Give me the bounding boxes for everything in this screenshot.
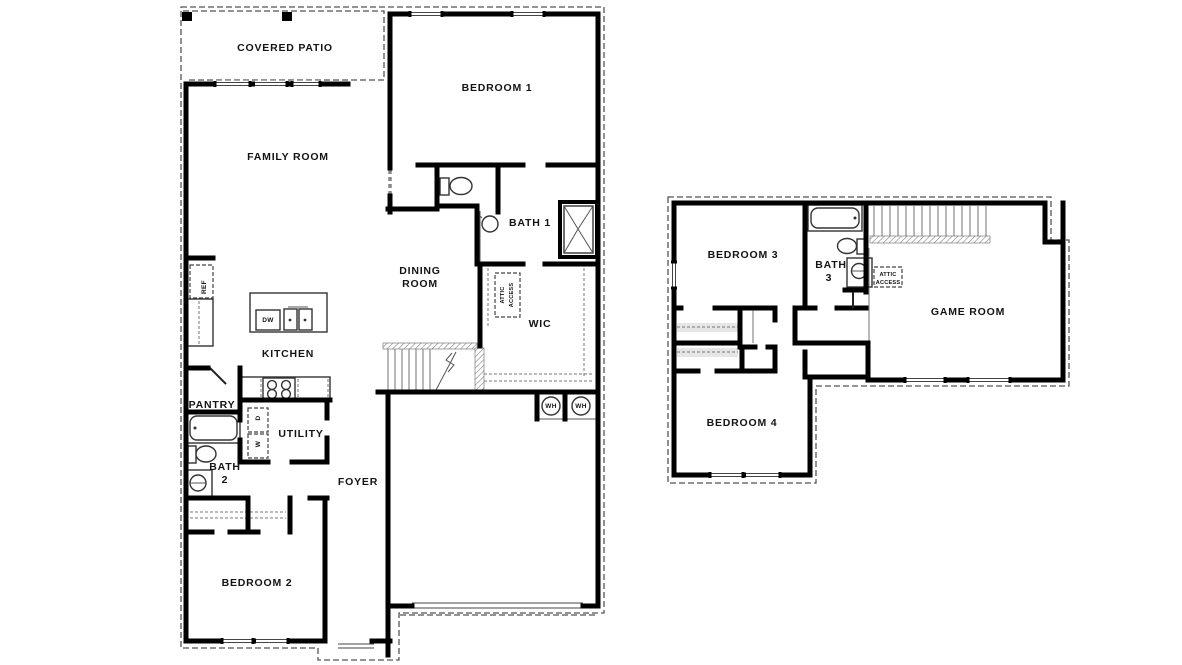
first-floor-walls: [186, 14, 598, 655]
room-label-dining-room: DINING: [399, 265, 441, 277]
bath1-shower-icon: [560, 202, 597, 257]
staircase-first-floor: [388, 349, 456, 390]
room-label-utility: UTILITY: [278, 428, 323, 440]
room-label-bath-3: BATH: [815, 259, 847, 271]
label-attic-access-ff-1: ATTIC: [500, 286, 506, 303]
label-water-heater-2: WH: [575, 403, 586, 410]
stair-hatch-wall: [475, 348, 484, 391]
room-label-pantry: PANTRY: [189, 399, 236, 411]
bath2-sink-icon: [187, 470, 212, 497]
bath1-toilet-icon: [440, 178, 472, 196]
label-attic-access-sf-1: ATTIC: [879, 272, 896, 278]
room-label-covered-patio: COVERED PATIO: [237, 42, 333, 54]
room-label-wic: WIC: [529, 318, 552, 330]
window: [214, 81, 252, 88]
bath3-tub-icon: [808, 205, 862, 231]
window: [409, 11, 444, 18]
patio-post: [282, 12, 292, 21]
label-dishwasher: DW: [262, 317, 274, 324]
bath2-tub-icon: [187, 413, 240, 443]
label-water-heater-1: WH: [545, 403, 556, 410]
stair-hatch-strip: [383, 343, 477, 349]
bath1-sink-icon: [478, 211, 498, 263]
garage-door: [412, 603, 583, 608]
window: [967, 377, 1012, 384]
label-refrigerator: REF: [201, 280, 208, 294]
floor-plan-drawing: COVERED PATIO FAMILY ROOM BEDROOM 1 BATH…: [0, 0, 1182, 665]
room-label-family-room: FAMILY ROOM: [247, 151, 329, 163]
room-label-bedroom-4: BEDROOM 4: [707, 417, 778, 429]
room-label-bath-3-num: 3: [826, 272, 833, 284]
room-label-kitchen: KITCHEN: [262, 348, 314, 360]
window: [255, 81, 289, 88]
window: [221, 638, 255, 645]
kitchen-island: [250, 293, 327, 332]
label-dryer: D: [255, 416, 262, 421]
window: [746, 472, 782, 479]
room-label-bedroom-1: BEDROOM 1: [462, 82, 533, 94]
second-floor-plan: BEDROOM 3 BATH 3 ATTIC ACCESS GAME ROOM …: [668, 197, 1069, 483]
window: [511, 11, 546, 18]
kitchen-counter: [187, 299, 213, 346]
label-washer: W: [255, 440, 262, 447]
room-label-bedroom-3: BEDROOM 3: [708, 249, 779, 261]
attic-access-box-first-floor: [495, 273, 520, 317]
label-attic-access-ff-2: ACCESS: [509, 283, 515, 308]
window: [291, 81, 322, 88]
patio-post: [182, 12, 192, 21]
room-label-bath-2-num: 2: [222, 474, 229, 486]
room-label-foyer: FOYER: [338, 476, 378, 488]
room-label-bath-2: BATH: [209, 461, 241, 473]
window: [671, 261, 678, 290]
pantry-door: [210, 368, 226, 384]
front-door: [338, 644, 374, 648]
room-label-bedroom-2: BEDROOM 2: [222, 577, 293, 589]
window: [709, 472, 745, 479]
label-attic-access-sf-2: ACCESS: [876, 280, 901, 286]
room-label-dining-room-2: ROOM: [402, 278, 438, 290]
washer-dryer-icons: [248, 408, 268, 458]
bedroom2-closet-rod: [190, 512, 286, 518]
room-label-game-room: GAME ROOM: [931, 306, 1005, 318]
window: [904, 377, 947, 384]
range-counter: [240, 377, 330, 400]
bath3-toilet-icon: [838, 239, 866, 255]
room-label-bath-1: BATH 1: [509, 217, 551, 229]
first-floor-plan: COVERED PATIO FAMILY ROOM BEDROOM 1 BATH…: [181, 7, 604, 660]
window: [256, 638, 290, 645]
floor-plan-canvas: COVERED PATIO FAMILY ROOM BEDROOM 1 BATH…: [0, 0, 1182, 665]
